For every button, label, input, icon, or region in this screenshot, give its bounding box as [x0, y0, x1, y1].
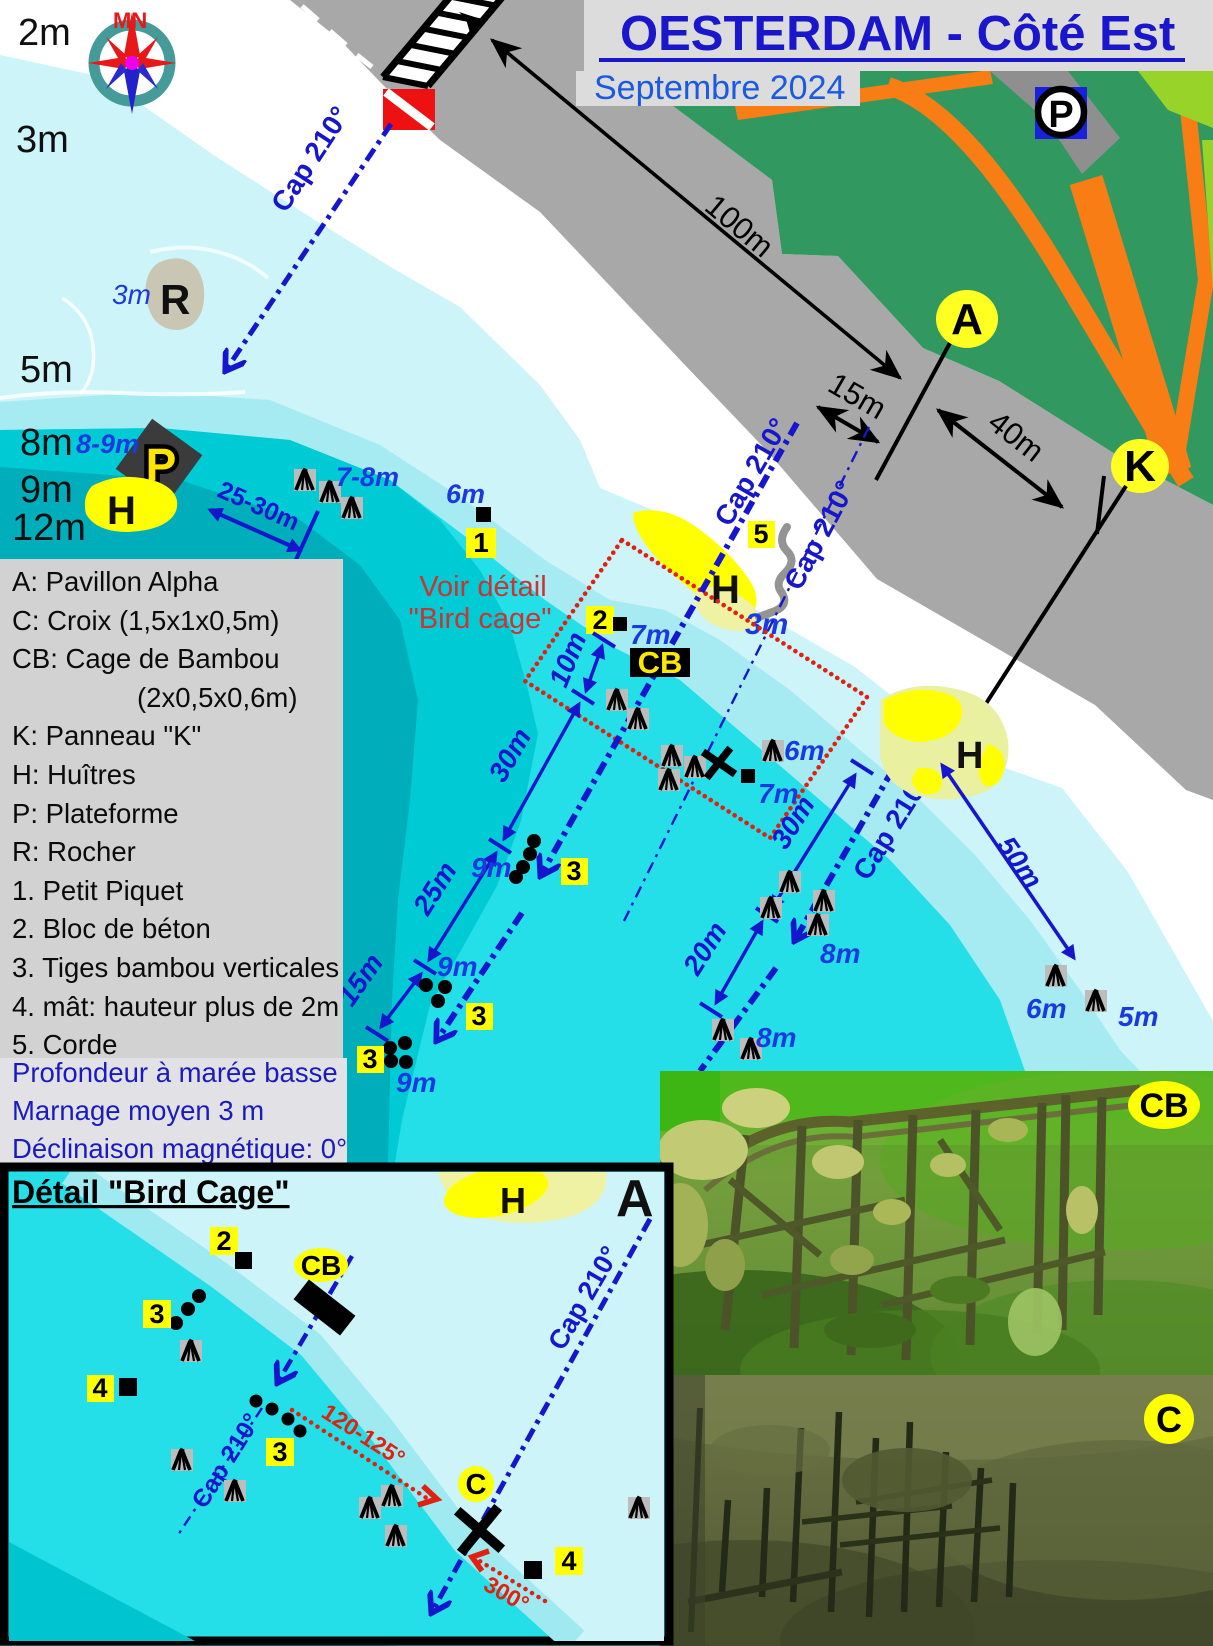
svg-text:12m: 12m: [12, 507, 86, 549]
svg-text:R: Rocher: R: Rocher: [12, 836, 136, 867]
svg-text:3. Tiges bambou verticales: 3. Tiges bambou verticales: [12, 952, 339, 983]
svg-text:3: 3: [149, 1299, 164, 1329]
svg-text:9m: 9m: [437, 951, 477, 982]
svg-text:H: Huîtres: H: Huîtres: [12, 759, 136, 790]
svg-text:6m: 6m: [446, 479, 485, 509]
svg-text:4: 4: [561, 1546, 576, 1576]
svg-text:8m: 8m: [820, 938, 860, 969]
svg-text:Septembre 2024: Septembre 2024: [594, 69, 845, 107]
svg-text:CB: CB: [638, 645, 683, 680]
svg-text:9m: 9m: [471, 852, 511, 883]
svg-text:4. mât: hauteur plus de 2m: 4. mât: hauteur plus de 2m: [12, 991, 339, 1022]
svg-text:(2x0,5x0,6m): (2x0,5x0,6m): [137, 682, 297, 713]
svg-text:7-8m: 7-8m: [336, 462, 399, 492]
svg-text:1: 1: [473, 527, 489, 558]
svg-text:5. Corde: 5. Corde: [12, 1029, 117, 1060]
svg-text:P: P: [1048, 94, 1073, 136]
svg-text:3: 3: [272, 1437, 287, 1467]
svg-text:Détail "Bird Cage": Détail "Bird Cage": [12, 1174, 290, 1210]
svg-text:3: 3: [471, 1001, 486, 1031]
svg-text:5: 5: [753, 519, 768, 549]
svg-text:3m: 3m: [112, 279, 151, 310]
svg-text:Voir détail: Voir détail: [419, 571, 546, 603]
svg-text:K: K: [1124, 442, 1156, 491]
svg-text:H: H: [107, 489, 136, 533]
svg-text:3: 3: [362, 1044, 377, 1074]
svg-text:H: H: [956, 735, 983, 777]
svg-text:CB: CB: [1139, 1087, 1188, 1125]
svg-text:6m: 6m: [1026, 993, 1066, 1024]
svg-text:3m: 3m: [16, 119, 69, 161]
svg-text:2: 2: [216, 1226, 231, 1256]
svg-text:2. Bloc de béton: 2. Bloc de béton: [12, 913, 211, 944]
svg-text:P: Plateforme: P: Plateforme: [12, 798, 179, 829]
svg-text:8m: 8m: [20, 422, 73, 464]
svg-text:A: A: [951, 295, 983, 344]
svg-text:4: 4: [92, 1373, 107, 1403]
svg-text:"Bird cage": "Bird cage": [408, 603, 551, 635]
svg-text:A: Pavillon Alpha: A: Pavillon Alpha: [12, 566, 219, 597]
svg-text:5m: 5m: [1118, 1001, 1158, 1032]
svg-text:9m: 9m: [20, 469, 73, 511]
svg-text:1. Petit Piquet: 1. Petit Piquet: [12, 875, 184, 906]
svg-text:Marnage moyen 3 m: Marnage moyen 3 m: [12, 1095, 264, 1126]
svg-text:9m: 9m: [396, 1067, 436, 1098]
svg-text:CB: CB: [301, 1250, 341, 1281]
svg-text:8m: 8m: [756, 1022, 796, 1053]
svg-text:CB: Cage de Bambou: CB: Cage de Bambou: [12, 643, 280, 674]
svg-text:K: Panneau "K": K: Panneau "K": [12, 720, 201, 751]
svg-text:R: R: [160, 276, 190, 323]
svg-text:3: 3: [566, 856, 581, 886]
svg-text:MN: MN: [113, 8, 147, 33]
svg-text:Déclinaison magnétique: 0°: Déclinaison magnétique: 0°: [12, 1133, 347, 1164]
svg-text:2: 2: [592, 605, 607, 635]
svg-text:2m: 2m: [18, 12, 71, 54]
svg-text:C: C: [466, 1469, 487, 1501]
svg-text:C: Croix (1,5x1x0,5m): C: Croix (1,5x1x0,5m): [12, 605, 279, 636]
svg-text:OESTERDAM - Côté Est: OESTERDAM - Côté Est: [620, 7, 1175, 61]
svg-text:6m: 6m: [784, 735, 824, 766]
svg-text:H: H: [500, 1180, 526, 1221]
svg-text:8-9m: 8-9m: [76, 429, 139, 459]
svg-text:5m: 5m: [20, 349, 73, 391]
svg-text:C: C: [1156, 1399, 1182, 1440]
svg-text:Profondeur à marée basse: Profondeur à marée basse: [12, 1057, 338, 1088]
